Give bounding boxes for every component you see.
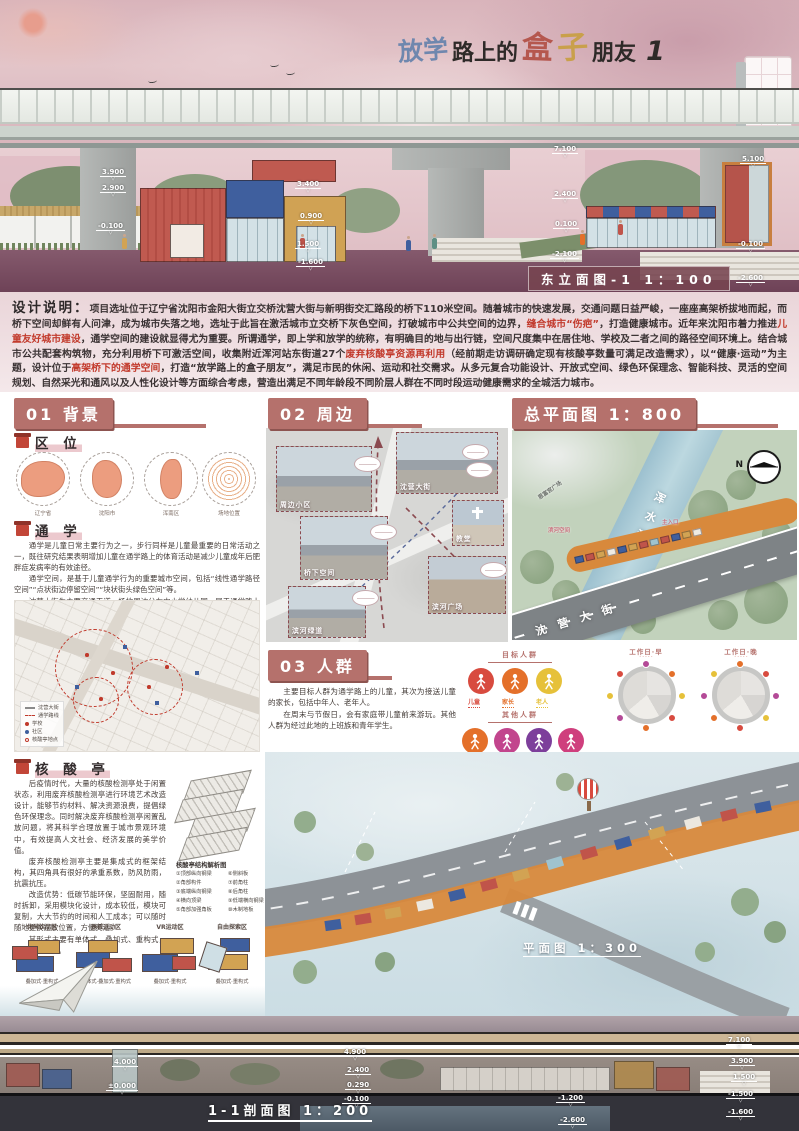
district-shape [160,459,182,499]
legend-row: 学校 [25,720,59,728]
cube-red [172,956,196,970]
map-label: 场地位置 [200,509,258,517]
group-icon-runner [558,728,584,754]
church-cross [476,507,479,519]
climbing-tower [722,162,772,246]
map-shenyang [80,452,134,506]
legend-label: 沈营大街 [38,704,59,712]
section-dim: -1.200 [556,1094,585,1103]
legend-item: ①顶部纵向钢梁 [176,870,212,879]
legend-label: 通学路线 [38,712,59,720]
school-dot-symbol [25,722,29,726]
group-label: 老人 [536,697,548,708]
hot-air-balloon [577,778,599,800]
speech-bubble [352,590,379,606]
elevation-dim: -2.100 [550,250,579,259]
container-blue [226,180,284,218]
plan-box [671,532,681,541]
clock-hour-dot [762,670,770,678]
elevation-dim: 2.900 [100,184,126,193]
zone-name: 自由探索区 [202,922,262,931]
speech-bubble [370,524,397,540]
speech-bubble [462,444,489,460]
elevation-dim: 2.400 [552,190,578,199]
church-cross-bar [472,510,483,513]
section-dim: -1.600 [726,1108,755,1117]
community-dot [75,685,79,689]
muted-container [6,1063,40,1087]
plan-box [585,552,595,561]
zone-explore: 自由探索区 叠加式·重构式 [202,922,262,985]
elevation-dim: 1.500 [295,240,321,249]
title-part-black: 路上的 [452,35,518,67]
design-description-text: 设计说明：项目选址位于辽宁省沈阳市金阳大街立交桥沈营大街与新明街交汇路段的桥下1… [12,298,787,392]
elevation-dim: -0.100 [96,222,125,231]
subsection-tongxue: 通 学 [16,520,82,540]
plan-box [681,530,691,539]
speech-bubble [480,562,507,578]
paragraph: 后疫情时代，大量的核酸检测亭处于闲置状态，利用废弃核酸检测亭进行环境艺术改造设计… [14,778,166,856]
muted-tree [230,1063,280,1085]
legend-row: 沈营大街 [25,704,59,712]
container-window [170,224,204,258]
photo-neighborhood: 周边小区 [276,446,372,512]
map-site [202,452,256,506]
clock-hour-dot [616,670,624,678]
photo-label: 教堂 [456,533,472,543]
section-dim: 7.100 [726,1036,752,1045]
section-dim: 0.290 [345,1081,371,1090]
plaza-label: 恩富宫广场 [536,479,563,501]
title-page-number: 1 [646,36,665,67]
description-label: 设计说明： [12,300,90,316]
plan-caption: 平面图 1：300 [523,940,641,957]
section-dim: 3.900 [729,1057,755,1066]
muted-container [614,1061,654,1089]
paragraph: 通学是儿童日常主要行为之一，步行同样是儿童最重要的日常活动之一，既往研究结果表明… [14,540,260,573]
school-dot [147,685,151,689]
cube-red [102,958,132,972]
road-line-symbol [25,707,35,709]
title-part-black2: 朋友 [592,35,636,67]
school-dot [165,665,169,669]
muted-container [656,1067,690,1091]
map-label: 沈阳市 [78,509,136,517]
muted-container [42,1069,72,1089]
paragraph: 废弃核酸检测亭主要是集成式的框架结构，其四角具有很好的承重系数，防风防雨，抗震抗… [14,856,166,889]
plan-box [692,527,702,536]
legend-label: 社区 [32,728,42,736]
person-figure [122,238,127,249]
booth-icon [16,525,29,536]
group-icon-cyclist [526,728,552,754]
school-dot [111,671,115,675]
compass-icon [747,450,781,484]
container-red-top [252,160,336,182]
plan-box [649,537,659,546]
commuting-route-map: 沈营大街 通学路线 学校 社区 核酸亭地点 [14,600,260,752]
description-highlight: 高架桥下的通学空间 [71,363,160,374]
legend-item: ③底端纵向钢梁 [176,888,212,897]
photo-label: 周边小区 [280,499,311,509]
tree-blob [520,550,554,584]
plan-1-300: 平面图 1：300 [265,752,799,1016]
legend-row: 社区 [25,728,59,736]
plan-roads [265,752,799,1016]
subsection-tongxue-title: 通 学 [35,520,82,540]
community-dot [155,701,159,705]
plan-box [574,555,584,564]
muted-tree [160,1059,200,1081]
map-liaoning [16,452,70,506]
master-plan-header: 总平面图 1：800 [512,398,696,429]
clock-hour-dot [736,660,744,668]
clock-hour-dot [762,714,770,722]
description-highlight: 缝合城市“伤疤” [527,319,599,330]
elevation-dim: 5.100 [740,155,766,164]
description-segment: ，打造健康城市。近年来沈阳市着力推进 [599,319,777,330]
title-part-gold: 子 [556,21,589,68]
axon-legend-left: ①顶部纵向钢梁 ②角部构件 ③底端纵向钢梁 ④横向顶梁 ⑤角部加强角板 [176,870,212,915]
zone-mode: 叠加式·重构式 [202,978,262,985]
compass-n-label: N [735,460,743,470]
legend-label: 核酸亭地点 [32,736,58,744]
clock-hour-dot [678,692,686,700]
zone-name: 休闲饮品区 [12,922,72,931]
zone-mode: 叠加式·重构式 [140,978,200,985]
booth-icon [16,437,29,448]
subsection-quwei-title: 区 位 [35,432,82,452]
person-figure [618,224,623,235]
paragraph: 在周末与节假日，会有家庭带儿童前来游玩。其他人群为经过此地的上班族和青年学生。 [268,709,456,732]
cube-gold [88,940,118,953]
zone-name: 器械运动区 [76,922,136,931]
bridge-pier-cap [392,148,510,170]
group-label: 家长 [502,697,514,708]
legend-item: ⑩木制地板 [228,906,264,915]
province-shape [21,461,65,497]
paragraph: 通学空间，是基于儿童通学行为的重要城市空间，包括“线性通学路径空间”“点状街边停… [14,573,260,595]
legend-item: ⑦前角柱 [228,879,264,888]
clock-hour-dot [642,660,650,668]
photo-label: 桥下空间 [304,567,335,577]
section-pavilion [440,1067,610,1091]
elevation-dim: -1.600 [296,258,325,267]
group-icon-parents [502,668,528,694]
title-part-red: 盒 [521,21,554,67]
section-bridge-deck [0,1032,799,1045]
design-poster: 放学 路上的 盒 子 朋友 1 3 [0,0,799,1131]
context-photo-map: 周边小区 沈营大街 桥下空间 滨河绿道 教堂 滨河广场 [266,428,508,642]
legend-row: 通学路线 [25,712,59,720]
section-header-01: 01 背景 [14,398,113,429]
legend-item: ④横向顶梁 [176,897,212,906]
map-label: 辽宁省 [14,509,72,517]
description-highlight: 废弃核酸亭资源再利用 [345,349,445,360]
entrance-label: 主入口 [662,518,679,526]
pavilion-glass [586,218,716,248]
clock-hour-dot [700,692,708,700]
subsection-hesuanting-title: 核 酸 亭 [35,758,110,778]
school-dot [99,697,103,701]
map-legend: 沈营大街 通学路线 学校 社区 核酸亭地点 [20,701,64,747]
zone-diagram [202,934,262,976]
subsection-hesuanting: 核 酸 亭 [16,758,110,778]
section-dim: 4.900 [342,1048,368,1057]
group-icon-worker [462,728,488,754]
person-figure [580,234,585,245]
clock-hour-dot [668,670,676,678]
pavilion-band [586,206,716,218]
section-dim: -1.500 [726,1090,755,1099]
road-network [207,457,251,501]
section-dim: 1.500 [731,1073,757,1082]
riverside-label: 滨河空间 [548,526,570,534]
route-circle [73,677,119,723]
legend-row: 核酸亭地点 [25,736,59,744]
legend-item: ⑨低端横向钢梁 [228,897,264,906]
poster-title: 放学 路上的 盒 子 朋友 1 [398,22,665,67]
section-dim: -2.600 [558,1116,587,1125]
legend-item: ⑥侧斜板 [228,870,264,879]
photo-church: 教堂 [452,500,504,546]
plan-box [638,540,648,549]
clock-hour-dot [772,692,780,700]
plan-box [660,535,670,544]
elevation-dim: -0.100 [736,240,765,249]
group-label: 儿童 [468,697,480,708]
plan-box [628,542,638,551]
plan-box [617,545,627,554]
city-shape [92,460,122,498]
bridge-deck [0,126,799,140]
zone-name: VR运动区 [140,922,200,931]
elevation-dim: 3.400 [295,180,321,189]
map-hunnan [144,452,198,506]
tree-blob [708,600,738,630]
axon-diagram-title: 核酸亭结构解析图 [176,860,226,869]
sun [18,8,48,38]
group-icon-elderly [536,668,562,694]
plan-box [606,547,616,556]
elevation-dim: 3.900 [100,168,126,177]
elevation-dim: 0.100 [553,220,579,229]
cube-red [12,946,38,960]
subsection-quwei: 区 位 [16,432,82,452]
clock-hour-dot [668,714,676,722]
school-dot [85,653,89,657]
route-line-symbol [25,715,35,716]
group-icon-student [494,728,520,754]
map-label: 浑南区 [142,509,200,517]
axon-legend-right: ⑥侧斜板 ⑦前角柱 ⑧后角柱 ⑨低端横向钢梁 ⑩木制地板 [228,870,264,915]
community-dot [123,645,127,649]
speech-bubble [354,456,381,472]
crowd-text: 主要目标人群为通学路上的儿童，其次为接送儿童的家长，包括中年人、老年人。 在周末… [268,686,456,732]
person-figure [432,238,437,249]
booth-icon [16,763,29,774]
east-elevation-caption: 东立面图-1 1：100 [528,266,730,291]
booth-dot-symbol [25,738,29,742]
section-dim: 4.000 [112,1058,138,1067]
clock-hour-dot [616,714,624,722]
elevation-dim: 7.100 [552,145,578,154]
section-dim: 2.400 [345,1066,371,1075]
legend-item: ②角部构件 [176,879,212,888]
person-figure [406,240,411,251]
section-dim: ±0.000 [106,1082,138,1091]
other-group-title: 其他人群 [488,710,552,723]
photo-label: 沈营大街 [400,481,431,491]
master-plan: 浑水河 新明街 沈营大街 恩富宫广场 滨河空间 主入口 N [512,430,797,640]
zone-vr: VR运动区 叠加式·重构式 [140,922,200,985]
community-dot [195,671,199,675]
route-circle [127,659,183,715]
container-glass [226,218,284,262]
elevation-dim: 0.900 [298,212,324,221]
section-header-02: 02 周边 [268,398,367,429]
legend-item: ⑧后角柱 [228,888,264,897]
cube-gold [160,938,194,954]
elevation-dim: -2.600 [736,274,765,283]
legend-item: ⑤角部加强角板 [176,906,212,915]
section-dim: -0.100 [342,1095,371,1104]
muted-tree [380,1059,424,1079]
clock-hour-dot [642,724,650,732]
section-header-03: 03 人群 [268,650,367,681]
zone-diagram [140,934,200,976]
community-dot-symbol [25,730,29,734]
title-part-blue: 放学 [397,29,449,68]
plan-box [595,550,605,559]
booth-exploded-axon [176,776,262,856]
target-group-title: 目标人群 [488,650,552,663]
clock-hour-dot [606,692,614,700]
photo-label: 滨河绿道 [292,625,323,635]
group-icon-children [468,668,494,694]
speech-bubble [466,462,493,478]
clock-hour-dot [736,724,744,732]
photo-label: 滨河广场 [432,601,463,611]
clock-hour-dot [710,714,718,722]
clock-hour-dot [710,670,718,678]
paragraph: 主要目标人群为通学路上的儿童，其次为接送儿童的家长，包括中年人、老年人。 [268,686,456,709]
legend-label: 学校 [32,720,42,728]
bridge-guardrail [0,88,799,124]
